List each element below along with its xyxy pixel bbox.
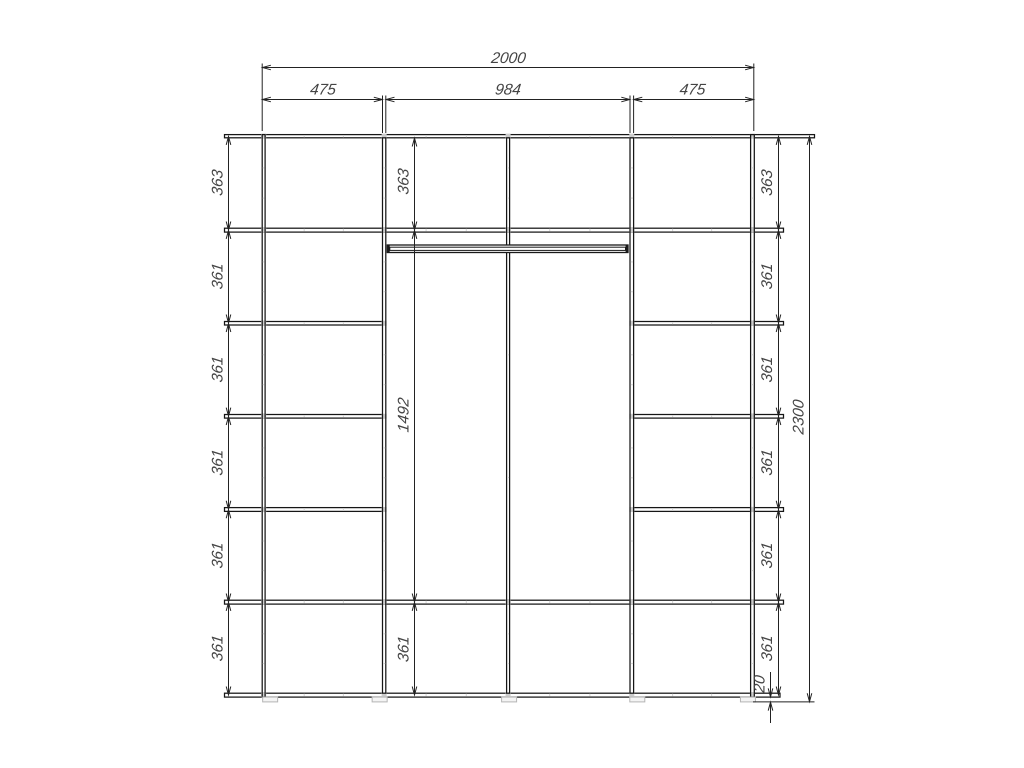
- svg-text:984: 984: [494, 82, 522, 99]
- svg-text:363: 363: [396, 167, 413, 195]
- svg-text:361: 361: [759, 262, 776, 290]
- svg-text:361: 361: [210, 262, 227, 290]
- svg-text:361: 361: [210, 634, 227, 662]
- svg-text:361: 361: [396, 635, 413, 663]
- svg-text:361: 361: [210, 541, 227, 569]
- svg-text:361: 361: [759, 355, 776, 383]
- svg-text:1492: 1492: [396, 396, 413, 433]
- svg-text:361: 361: [210, 355, 227, 383]
- svg-text:361: 361: [210, 448, 227, 476]
- svg-text:2000: 2000: [489, 50, 527, 67]
- svg-text:361: 361: [759, 541, 776, 569]
- svg-text:363: 363: [759, 168, 776, 196]
- svg-text:475: 475: [309, 82, 337, 99]
- svg-text:20: 20: [752, 674, 769, 695]
- svg-text:361: 361: [759, 448, 776, 476]
- svg-text:361: 361: [759, 634, 776, 662]
- svg-text:363: 363: [210, 168, 227, 196]
- svg-text:475: 475: [679, 82, 707, 99]
- svg-text:2300: 2300: [791, 398, 808, 436]
